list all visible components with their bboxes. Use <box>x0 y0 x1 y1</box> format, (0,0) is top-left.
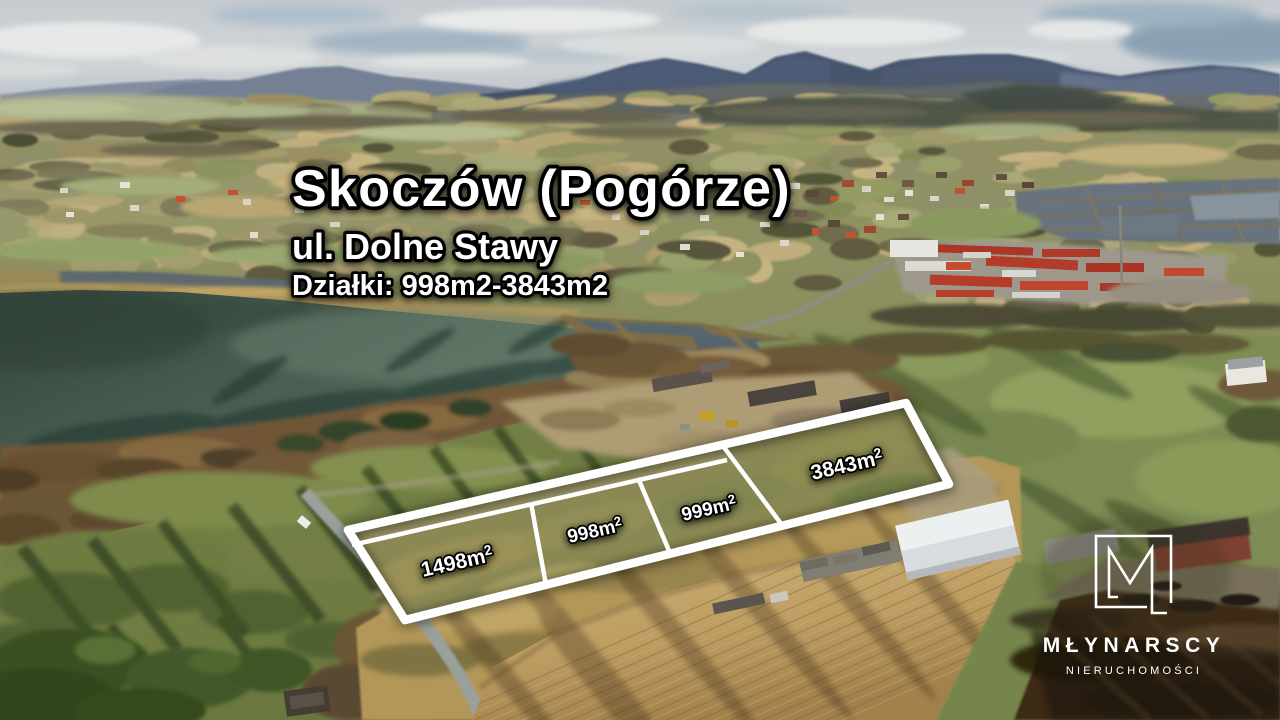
svg-text:Działki: 998m2-3843m2: Działki: 998m2-3843m2 <box>292 270 608 302</box>
svg-text:Skoczów (Pogórze): Skoczów (Pogórze) <box>292 160 791 218</box>
svg-text:ul. Dolne Stawy: ul. Dolne Stawy <box>292 226 558 267</box>
svg-text:NIERUCHOMOŚCI: NIERUCHOMOŚCI <box>1066 664 1202 677</box>
svg-text:MŁYNARSCY: MŁYNARSCY <box>1043 634 1226 657</box>
